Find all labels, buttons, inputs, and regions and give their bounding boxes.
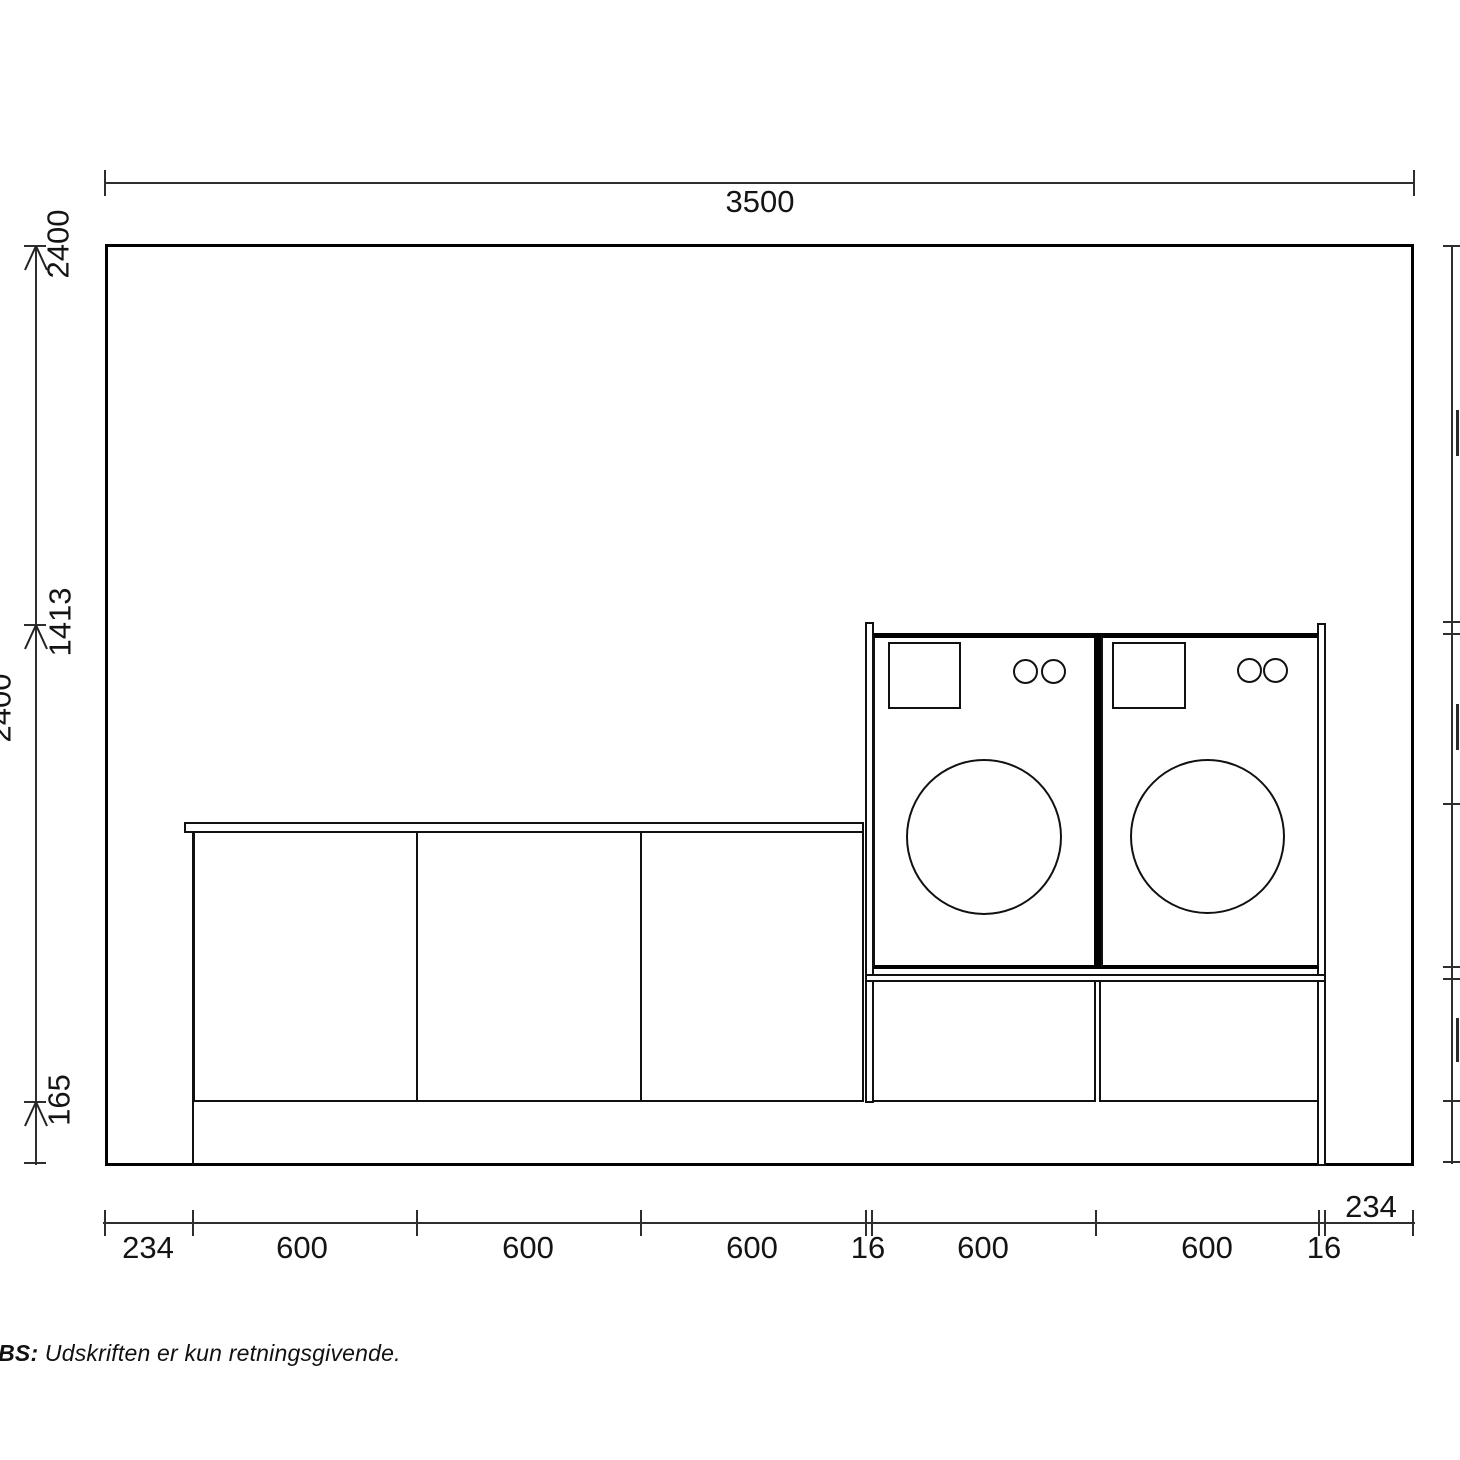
dim-label-plinth: 165 xyxy=(44,1074,75,1126)
cabinet-side-panel xyxy=(192,833,194,1165)
control-knob xyxy=(1041,659,1066,684)
dim-right-ext xyxy=(1443,633,1460,635)
control-knob xyxy=(1263,658,1288,683)
dim-bottom-tick xyxy=(1095,1210,1097,1236)
control-knob xyxy=(1013,659,1038,684)
dim-left-chain-line xyxy=(35,246,37,1165)
washer-door xyxy=(1130,759,1285,914)
dim-right-ext xyxy=(1443,966,1460,968)
cabinet-door-divider xyxy=(416,833,418,1102)
dim-right-ext xyxy=(1443,803,1460,805)
cabinet-door-divider xyxy=(640,833,642,1102)
dim-label-seg: 16 xyxy=(1294,1232,1354,1263)
detergent-drawer xyxy=(888,642,961,709)
washer-door xyxy=(906,759,1062,915)
dim-label-full-height-clipped: 2400 xyxy=(0,674,16,743)
control-knob xyxy=(1237,658,1262,683)
clipped-label-fragment xyxy=(1456,410,1459,456)
dim-bottom-line xyxy=(103,1222,1415,1224)
clipped-label-fragment xyxy=(1456,704,1459,750)
dim-label-seg: 600 xyxy=(468,1232,588,1263)
dim-right-ext xyxy=(1443,978,1460,980)
dim-bottom-tick xyxy=(416,1210,418,1236)
dim-label-seg: 600 xyxy=(1147,1232,1267,1263)
dim-label-total-width: 3500 xyxy=(105,186,1415,217)
disclaimer-label: OBS: xyxy=(0,1340,38,1366)
dim-right-ext xyxy=(1443,245,1460,247)
dim-label-seg: 600 xyxy=(692,1232,812,1263)
clipped-label-fragment xyxy=(1456,1018,1459,1062)
disclaimer-text: Udskriften er kun retningsgivende. xyxy=(45,1340,401,1366)
pedestal-drawer-left xyxy=(872,980,1096,1102)
dim-label-seg: 600 xyxy=(242,1232,362,1263)
elevation-drawing: 3500 2400 1413 165 2400 xyxy=(0,0,1460,1460)
cabinet-run xyxy=(193,833,864,1102)
dim-label-seg: 16 xyxy=(838,1232,898,1263)
detergent-drawer xyxy=(1112,642,1186,709)
dim-right-ext xyxy=(1443,1161,1460,1163)
dim-label-wall-height: 2400 xyxy=(43,210,74,279)
washer-divider-panel xyxy=(1094,633,1101,969)
countertop xyxy=(184,822,864,833)
dim-label-washer-top: 1413 xyxy=(45,588,76,657)
dim-label-seg: 600 xyxy=(923,1232,1043,1263)
dim-label-seg-above: 234 xyxy=(1311,1191,1431,1222)
dim-bottom-tick xyxy=(640,1210,642,1236)
disclaimer-note: OBS: Udskriften er kun retningsgivende. xyxy=(0,1340,401,1367)
dim-right-ext xyxy=(1443,621,1460,623)
dim-left-ext-floor xyxy=(24,1162,46,1164)
pedestal-drawer-right xyxy=(1099,980,1319,1102)
dim-right-ext xyxy=(1443,1100,1460,1102)
dim-right-chain-line xyxy=(1451,247,1453,1164)
dim-label-seg: 234 xyxy=(88,1232,208,1263)
